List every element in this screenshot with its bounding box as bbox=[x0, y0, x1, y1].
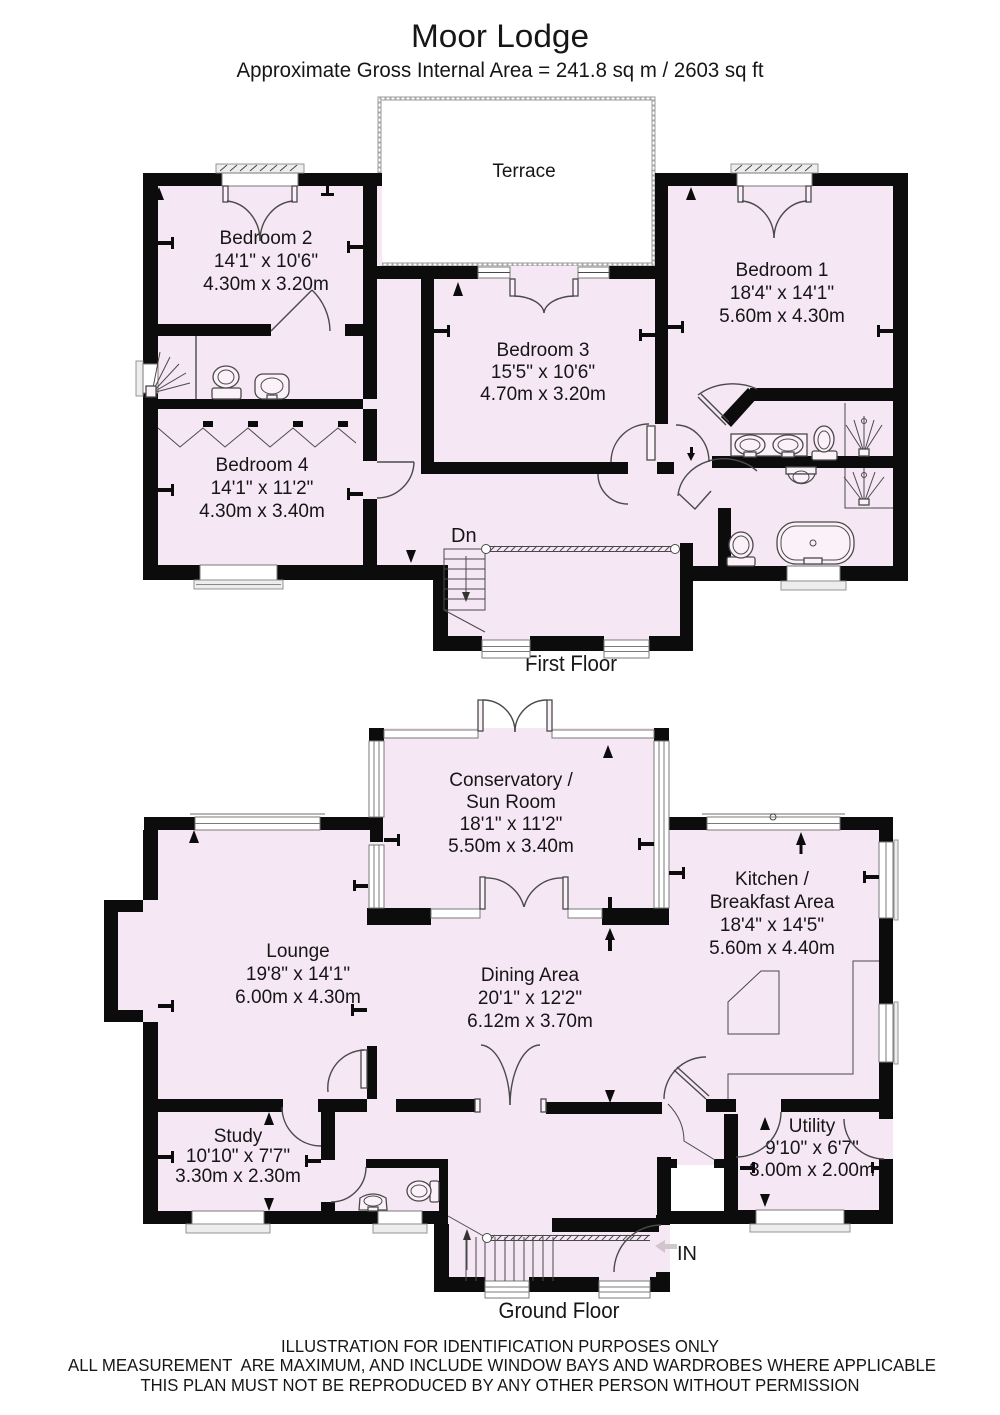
svg-text:Dining Area: Dining Area bbox=[481, 965, 580, 986]
svg-text:Bedroom 3: Bedroom 3 bbox=[497, 340, 590, 361]
svg-text:18'4" x 14'1": 18'4" x 14'1" bbox=[730, 283, 834, 304]
svg-text:Conservatory /: Conservatory / bbox=[449, 770, 573, 791]
svg-text:5.50m x 3.40m: 5.50m x 3.40m bbox=[448, 836, 574, 857]
svg-text:5.60m x 4.40m: 5.60m x 4.40m bbox=[709, 938, 835, 959]
svg-text:Terrace: Terrace bbox=[492, 161, 555, 182]
svg-text:5.60m x 4.30m: 5.60m x 4.30m bbox=[719, 306, 845, 327]
svg-text:3.00m x 2.00m: 3.00m x 2.00m bbox=[749, 1160, 875, 1181]
svg-text:First Floor: First Floor bbox=[525, 651, 617, 676]
svg-text:14'1" x 11'2": 14'1" x 11'2" bbox=[211, 478, 314, 499]
svg-text:ALL MEASUREMENT ARE MAXIMUM,: ALL MEASUREMENT ARE MAXIMUM, AND INCLUDE… bbox=[68, 1355, 936, 1375]
svg-text:THIS PLAN MUST NOT BE REPRODUC: THIS PLAN MUST NOT BE REPRODUCED BY ANY … bbox=[141, 1375, 860, 1395]
svg-text:6.12m x 3.70m: 6.12m x 3.70m bbox=[467, 1011, 593, 1032]
svg-text:3.30m x 2.30m: 3.30m x 2.30m bbox=[175, 1166, 301, 1187]
svg-text:15'5" x 10'6": 15'5" x 10'6" bbox=[491, 362, 595, 383]
svg-text:9'10" x 6'7": 9'10" x 6'7" bbox=[765, 1138, 859, 1159]
svg-text:10'10" x 7'7": 10'10" x 7'7" bbox=[186, 1146, 290, 1167]
svg-text:Approximate Gross Internal Are: Approximate Gross Internal Area = 241.8 … bbox=[237, 59, 764, 82]
svg-text:ILLUSTRATION FOR IDENTIFICATIO: ILLUSTRATION FOR IDENTIFICATION PURPOSES… bbox=[281, 1336, 719, 1356]
svg-text:Moor Lodge: Moor Lodge bbox=[411, 18, 589, 54]
svg-text:Dn: Dn bbox=[451, 525, 477, 547]
svg-text:Bedroom 4: Bedroom 4 bbox=[216, 455, 309, 476]
svg-text:Bedroom 2: Bedroom 2 bbox=[220, 228, 313, 249]
svg-text:Study: Study bbox=[214, 1126, 263, 1147]
svg-text:6.00m x 4.30m: 6.00m x 4.30m bbox=[235, 987, 361, 1008]
svg-text:IN: IN bbox=[677, 1243, 697, 1265]
svg-text:14'1" x 10'6": 14'1" x 10'6" bbox=[214, 251, 318, 272]
svg-text:19'8" x 14'1": 19'8" x 14'1" bbox=[246, 964, 350, 985]
svg-text:4.30m x 3.40m: 4.30m x 3.40m bbox=[199, 501, 325, 522]
svg-text:18'4" x 14'5": 18'4" x 14'5" bbox=[720, 915, 824, 936]
svg-text:Sun Room: Sun Room bbox=[466, 792, 556, 813]
svg-text:20'1" x 12'2": 20'1" x 12'2" bbox=[478, 988, 582, 1009]
svg-text:Breakfast Area: Breakfast Area bbox=[710, 892, 835, 913]
svg-text:4.70m x 3.20m: 4.70m x 3.20m bbox=[480, 384, 606, 405]
svg-text:Bedroom 1: Bedroom 1 bbox=[736, 260, 829, 281]
svg-text:Lounge: Lounge bbox=[266, 941, 329, 962]
svg-text:Ground Floor: Ground Floor bbox=[499, 1298, 620, 1323]
svg-text:18'1" x 11'2": 18'1" x 11'2" bbox=[460, 814, 563, 835]
svg-text:Utility: Utility bbox=[789, 1116, 836, 1137]
svg-text:Kitchen /: Kitchen / bbox=[735, 869, 810, 890]
